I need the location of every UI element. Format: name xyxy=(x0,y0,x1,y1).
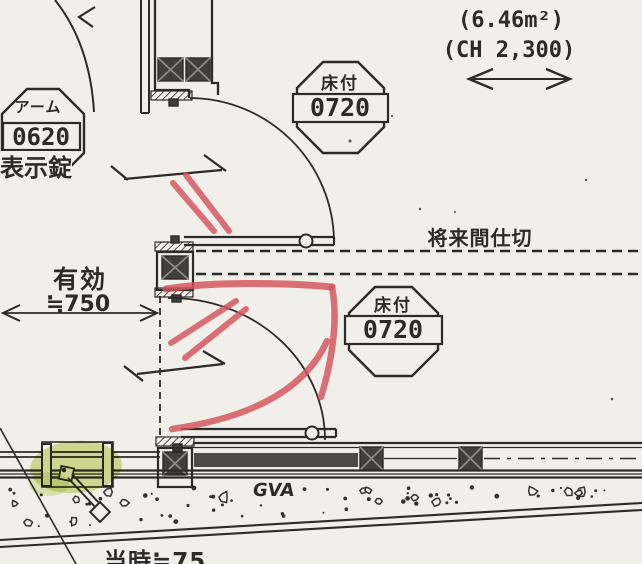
tag-arm-size: 0620 xyxy=(12,123,70,151)
effective-width-title: 有効 xyxy=(53,265,107,294)
track-label: GVA xyxy=(251,480,295,501)
tag-floor-top-name: 床付 xyxy=(321,73,359,94)
area-label: (6.46m²) xyxy=(458,8,564,33)
tag-arm: アーム 0620 表示錠 xyxy=(0,89,84,182)
sill-anchor-top xyxy=(169,99,178,106)
tag-floor-bottom-name: 床付 xyxy=(374,295,412,316)
effective-width-value: ≒750 xyxy=(46,292,110,317)
rail-roller-upper xyxy=(300,235,313,248)
rail-roller-lower xyxy=(306,427,319,440)
ceiling-height-label: (CH 2,300) xyxy=(443,38,575,63)
tag-floor-bottom-size: 0720 xyxy=(363,315,423,344)
tag-arm-name: アーム xyxy=(15,98,62,116)
bottom-partial-label: 当時≒75 xyxy=(104,549,206,564)
future-partition-label: 将来間仕切 xyxy=(428,226,533,250)
tag-floor-top-size: 0720 xyxy=(310,93,370,122)
scanned-floor-plan: アーム 0620 表示錠 床付 0720 床付 0720 (6.46m²) (C… xyxy=(0,0,642,564)
tag-arm-lock: 表示錠 xyxy=(0,154,72,182)
jamb-anchor-mid-upper xyxy=(171,236,179,243)
pocket-door-panel xyxy=(194,453,358,467)
floor-plan-drawing: アーム 0620 表示錠 床付 0720 床付 0720 (6.46m²) (C… xyxy=(0,0,642,564)
